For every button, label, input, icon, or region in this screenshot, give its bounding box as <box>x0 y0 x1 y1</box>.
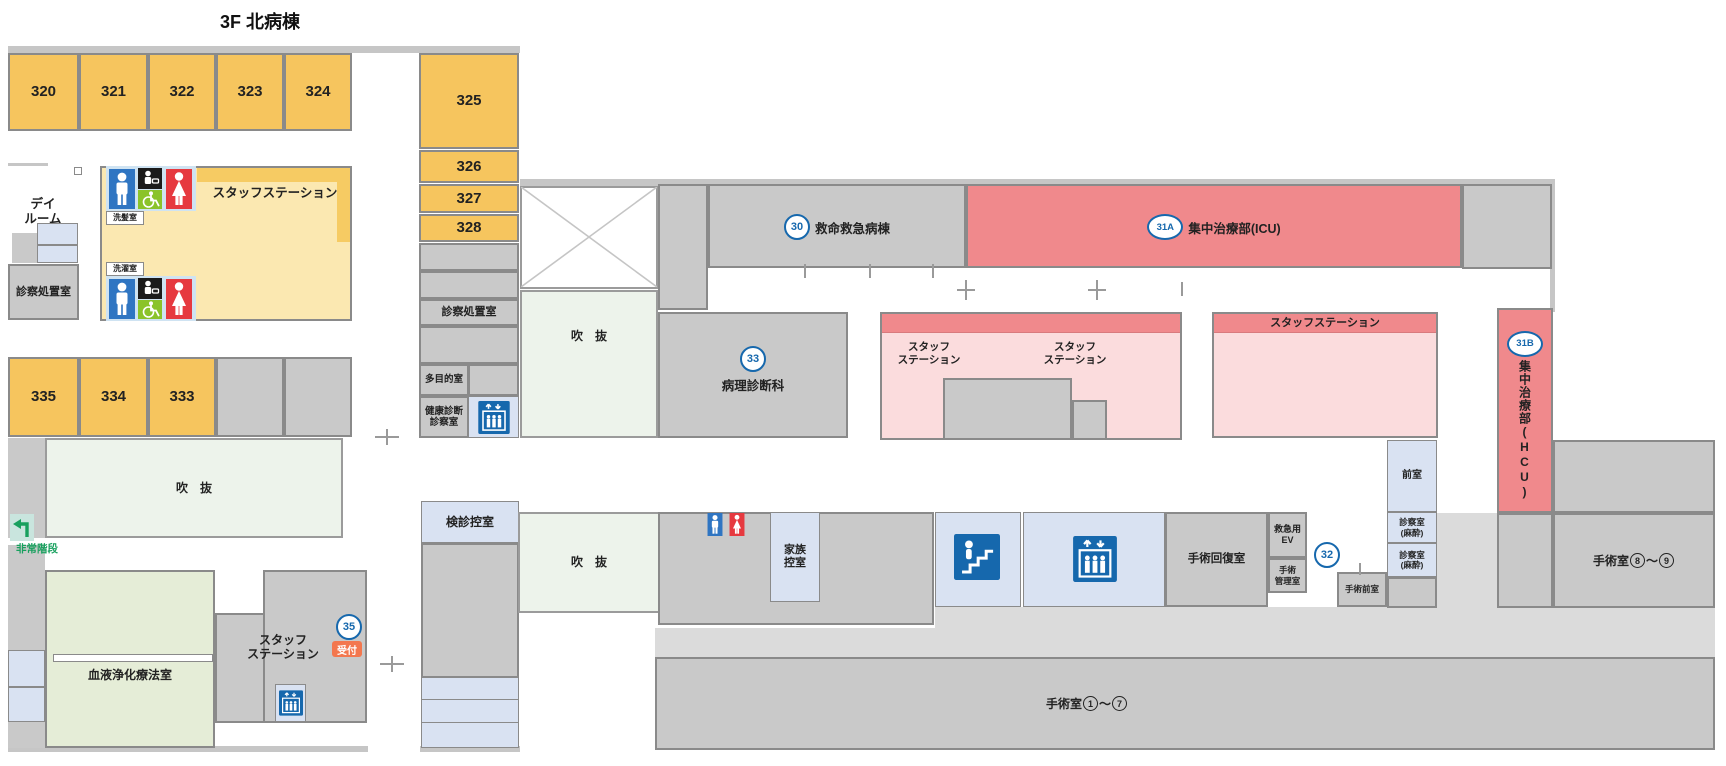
badge-30: 30 <box>784 214 810 240</box>
door-marker <box>74 167 82 175</box>
pink1-staff-label-2: スタッフ ステーション <box>1030 341 1120 366</box>
pink1-gray-a <box>943 378 1072 440</box>
surgery-recovery-room: 手術回復室 <box>1165 512 1268 607</box>
door-tick-12 <box>391 656 393 672</box>
surgery-admin-room: 手術 管理室 <box>1268 558 1307 593</box>
checkup-waiting-room: 検診控室 <box>421 501 519 543</box>
hcu-label-text: 集中治療部(HCU) <box>1517 360 1534 500</box>
left-column-b <box>8 545 45 650</box>
er-ward-label: 30救命救急病棟 <box>708 214 966 240</box>
exam-treatment-room-east: 診察処置室 <box>419 299 519 326</box>
gray-topright <box>1462 184 1552 269</box>
gray-right-upper <box>1553 440 1715 513</box>
gray-room-1 <box>216 357 284 437</box>
badge-31B: 31B <box>1507 331 1543 357</box>
ope-room-1-7-label: 手術室1～7 <box>987 695 1187 712</box>
atrium-mid: 吹 抜 <box>518 512 660 613</box>
laundry-room: 洗濯室 <box>106 262 144 276</box>
pathology-label-text: 病理診断科 <box>722 375 785 394</box>
corridor-mid <box>935 607 1437 628</box>
pathology-label: 33病理診断科 <box>658 344 848 396</box>
badge-35: 35 <box>336 614 362 640</box>
checkup-blue-2 <box>421 699 519 723</box>
multipurpose-room: 多目的室 <box>419 364 469 396</box>
badge-31A: 31A <box>1147 214 1183 240</box>
baby-room-icon-2 <box>138 278 162 299</box>
gray-column-east <box>658 184 708 310</box>
room-323: 323 <box>216 53 284 131</box>
checkup-blue-3 <box>421 722 519 748</box>
utility-room-3 <box>419 326 519 364</box>
elevator-icon-south <box>279 688 303 718</box>
room-324: 324 <box>284 53 352 131</box>
elevator-icon-main <box>1073 536 1117 582</box>
cabinet-blue-1 <box>37 223 78 245</box>
gray-small-89 <box>1497 513 1553 608</box>
door-tick-7 <box>1088 289 1106 291</box>
staff-station-north-label: スタッフステーション <box>200 186 350 201</box>
surgery-anteroom: 手術前室 <box>1337 572 1387 607</box>
blood-purification-label: 血液浄化療法室 <box>45 668 215 682</box>
pink-block-1-band <box>882 314 1180 333</box>
staff-station-south-label: スタッフ ステーション <box>231 633 335 662</box>
male-toilet-icon-2 <box>109 279 135 319</box>
void-cross-icon <box>521 187 657 287</box>
corridor-right <box>1437 513 1498 628</box>
exam-anesthesia-2: 診察室 (麻酔) <box>1387 543 1437 577</box>
door-tick-10 <box>386 429 388 445</box>
icu-label-text: 集中治療部(ICU) <box>1188 218 1280 237</box>
room-327: 327 <box>419 184 519 213</box>
atrium-southwest: 吹 抜 <box>45 438 343 538</box>
door-tick-1 <box>804 264 806 278</box>
cabinet-blue-2 <box>37 245 78 263</box>
corridor-right-low <box>1497 608 1715 628</box>
checkup-blue-1 <box>421 677 519 700</box>
accessible-toilet-icon-2 <box>138 300 162 319</box>
emergency-stairs-label: 非常階段 <box>4 543 70 556</box>
baby-room-icon-1 <box>138 168 162 189</box>
room-325: 325 <box>419 53 519 149</box>
floorplan: 3F 北病棟 320321322323324325326327328診察処置室多… <box>0 0 1726 766</box>
door-tick-13 <box>1359 563 1361 575</box>
room-320: 320 <box>8 53 79 131</box>
room-334: 334 <box>79 357 148 437</box>
male-toilet-icon-1 <box>109 169 135 209</box>
emergency-elevator-room: 救急用 EV <box>1268 512 1307 558</box>
hcu-label: 31B集中治療部(HCU) <box>1497 320 1553 510</box>
female-toilet-icon-1 <box>166 169 192 209</box>
utility-room-1 <box>419 243 519 271</box>
badge-33: 33 <box>740 346 766 372</box>
door-tick-3 <box>932 264 934 278</box>
staff-station-north-sideband <box>337 168 350 242</box>
wall-top-north <box>8 46 520 53</box>
female-toilet-icon-2 <box>166 279 192 319</box>
left-blue-2 <box>8 687 45 722</box>
pink1-staff-label-1: スタッフ ステーション <box>884 341 974 366</box>
exam-treatment-room-west: 診察処置室 <box>8 264 79 320</box>
stairs-icon <box>954 534 1000 580</box>
atrium-north-label: 吹 抜 <box>520 329 658 343</box>
accessible-toilet-icon-1 <box>138 190 162 209</box>
health-checkup-exam-room: 健康診断 診察室 <box>419 396 469 438</box>
ope-room-8-9-label: 手術室8～9 <box>1553 552 1715 569</box>
page-title: 3F 北病棟 <box>220 8 300 34</box>
room-333: 333 <box>148 357 216 437</box>
pink2-staff-label: スタッフステーション <box>1212 317 1438 330</box>
family-waiting-room: 家族 控室 <box>770 512 820 602</box>
exam-anesthesia-1: 診察室 (麻酔) <box>1387 512 1437 543</box>
room-335: 335 <box>8 357 79 437</box>
checkup-gray <box>421 543 519 678</box>
elevator-icon-north <box>478 401 510 434</box>
gray-room-2 <box>284 357 352 437</box>
door-tick-2 <box>869 264 871 278</box>
reception-badge: 受付 <box>332 641 362 657</box>
room-322: 322 <box>148 53 216 131</box>
icu-label: 31A集中治療部(ICU) <box>966 214 1462 240</box>
emergency-stairs-icon <box>12 516 32 539</box>
pink1-gray-b <box>1072 400 1107 440</box>
atrium-north <box>520 290 658 438</box>
door-tick-5 <box>957 289 975 291</box>
badge-32: 32 <box>1314 542 1340 568</box>
female-toilet-icon-3 <box>727 513 747 536</box>
left-column-c <box>8 722 45 748</box>
left-blue-1 <box>8 650 45 687</box>
gray-under-anesthesia <box>1387 577 1437 608</box>
er-ward-label-text: 救命救急病棟 <box>815 218 890 237</box>
staff-station-south-b <box>215 613 265 723</box>
room-321: 321 <box>79 53 148 131</box>
male-toilet-icon-3 <box>705 513 725 536</box>
utility-room-2 <box>419 271 519 299</box>
room-326: 326 <box>419 150 519 183</box>
corridor-lower <box>655 628 1715 657</box>
hair-washing-room: 洗髪室 <box>106 211 144 225</box>
staff-station-north-topband <box>197 168 350 182</box>
counter-bar <box>53 654 213 662</box>
door-tick-8 <box>1181 282 1183 296</box>
anteroom: 前室 <box>1387 440 1437 512</box>
cabinet-gray <box>12 233 37 263</box>
room-328: 328 <box>419 214 519 242</box>
utility-room-4 <box>468 364 519 396</box>
